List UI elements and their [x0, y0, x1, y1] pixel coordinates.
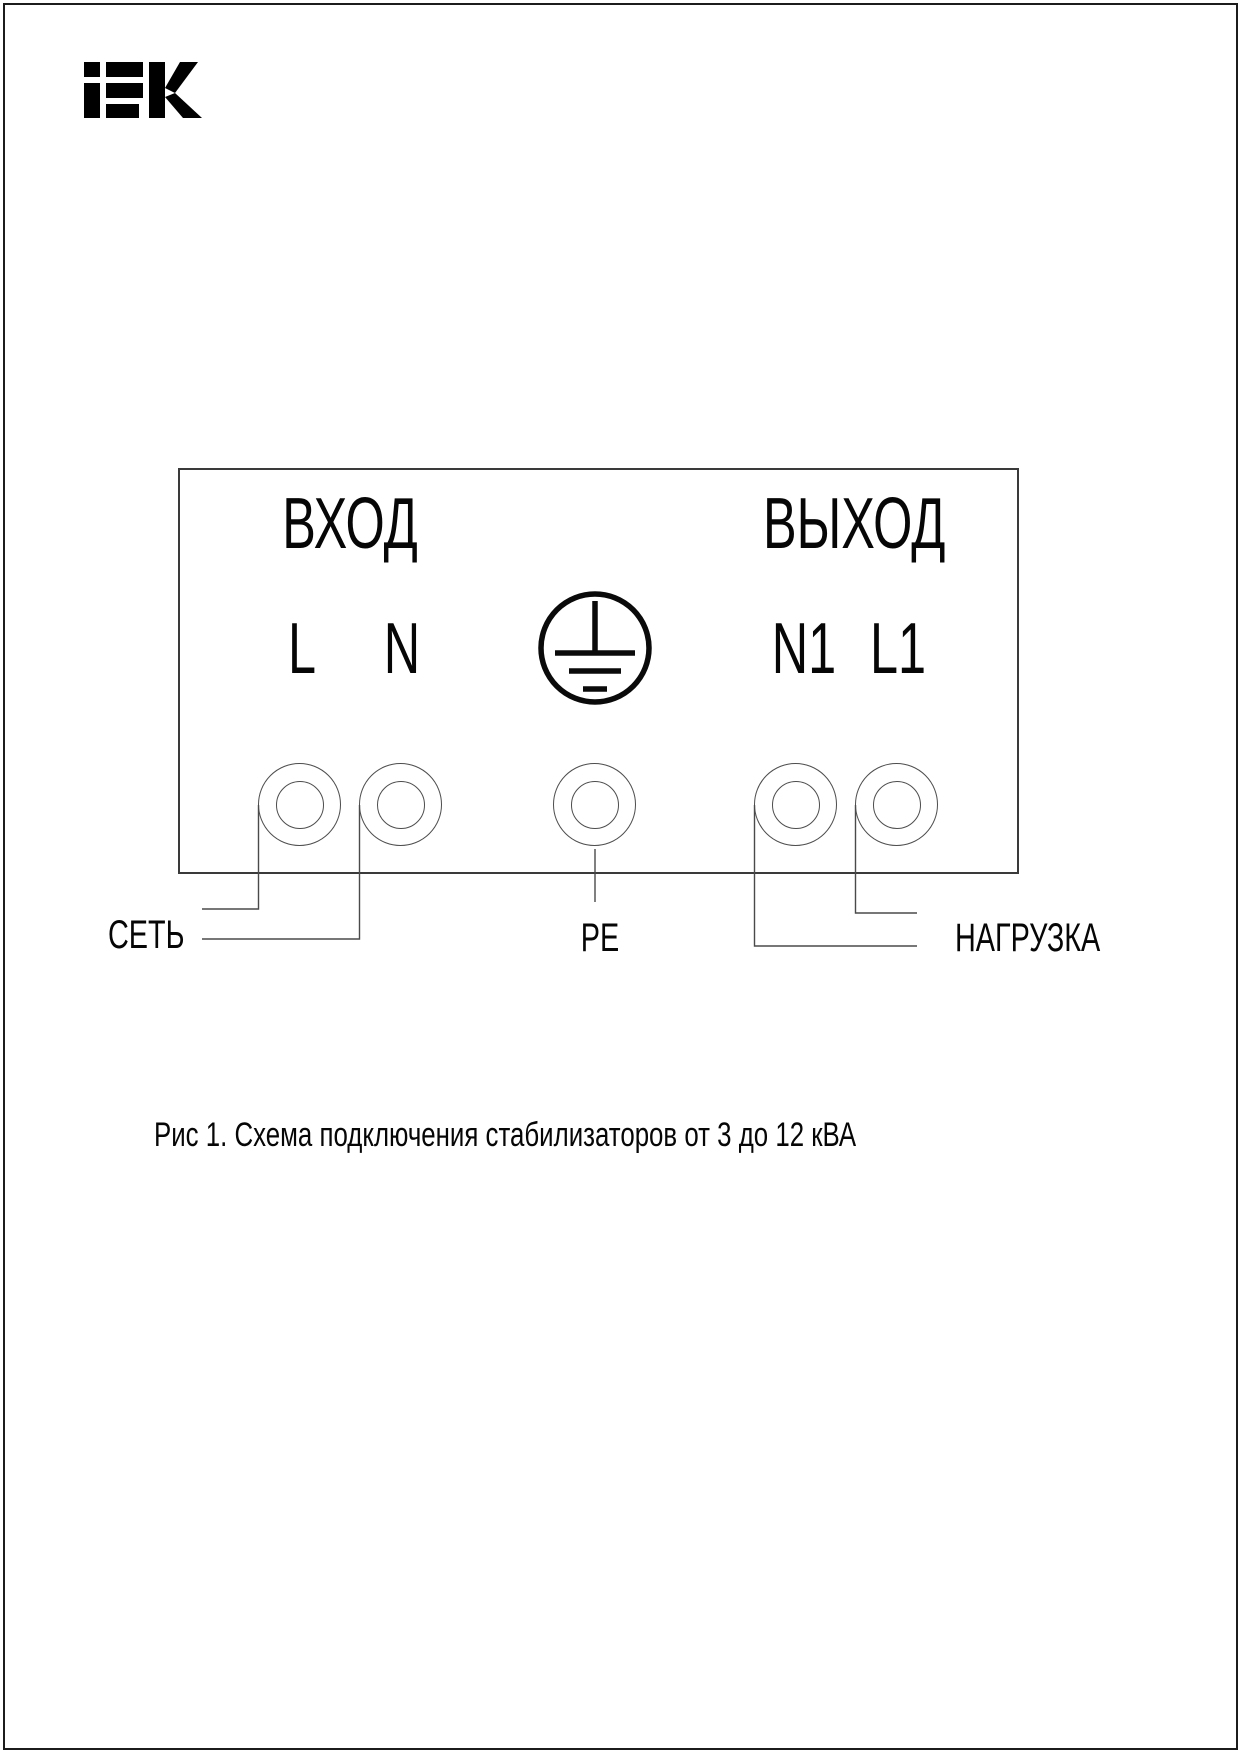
terminal-n1-hole — [772, 781, 820, 829]
logo-k-stem — [149, 62, 165, 118]
page-border — [3, 3, 1238, 1750]
pe-label: PE — [571, 918, 629, 958]
iek-logo — [84, 62, 206, 119]
terminal-l — [258, 763, 341, 846]
terminal-label-l: L — [267, 613, 337, 685]
logo-k-lower-arm — [165, 93, 202, 118]
logo-i-dot — [84, 62, 100, 77]
terminal-l1-hole — [873, 781, 921, 829]
figure-caption: Рис 1. Схема подключения стабилизаторов … — [154, 1116, 856, 1154]
terminal-n1 — [754, 763, 837, 846]
terminal-l1 — [855, 763, 938, 846]
terminal-n-hole — [377, 781, 425, 829]
logo-e-bar-mid — [106, 83, 143, 98]
terminal-label-n: N — [367, 613, 437, 685]
terminal-pe — [553, 763, 636, 846]
logo-e-bar-bottom — [106, 104, 139, 118]
terminal-label-n1: N1 — [763, 613, 844, 685]
input-section-title: ВХОД — [266, 488, 434, 560]
callout-lines — [0, 0, 1241, 1753]
logo-e-bar-top — [106, 62, 143, 77]
manual-page: ВХОД ВЫХОД L N N1 L1 — [0, 0, 1241, 1753]
load-label: НАГРУЗКА — [955, 918, 1100, 958]
output-section-title: ВЫХОД — [763, 488, 931, 560]
terminal-l-hole — [276, 781, 324, 829]
terminal-n — [359, 763, 442, 846]
terminal-pe-hole — [571, 781, 619, 829]
logo-k-upper-arm — [165, 62, 198, 93]
logo-i-stem — [84, 83, 100, 118]
mains-label: СЕТЬ — [108, 915, 185, 955]
terminal-label-l1: L1 — [863, 613, 933, 685]
